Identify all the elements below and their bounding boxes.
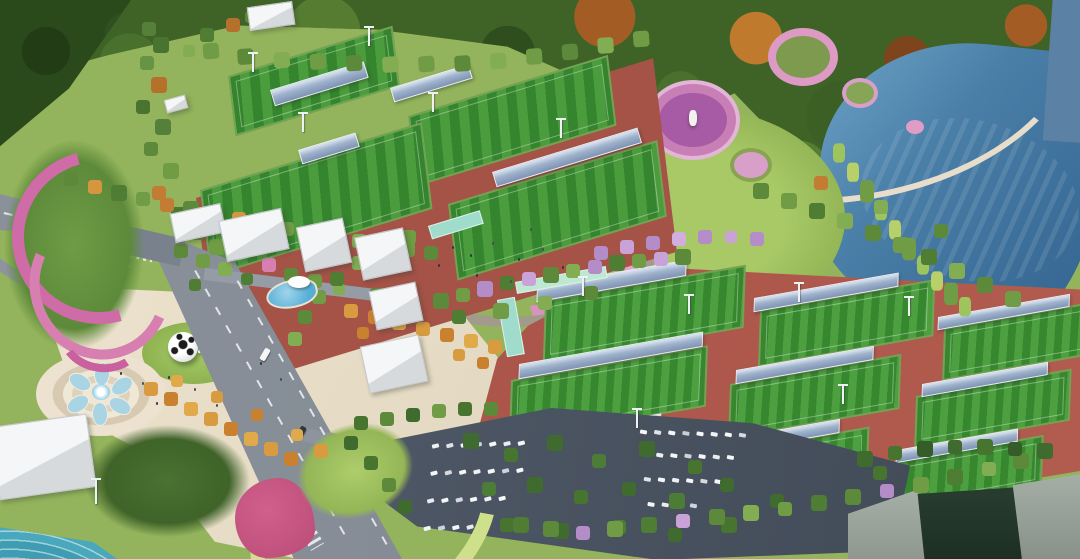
flower-circle-garden: [768, 28, 838, 86]
floodlight-pole: [582, 276, 584, 296]
floodlight-pole: [302, 112, 304, 132]
flower-circle-garden: [906, 120, 924, 134]
white-sculpture: [689, 110, 697, 126]
floodlight-pole: [95, 478, 97, 504]
garden-grove: [85, 425, 250, 537]
fountain-jet: [92, 384, 110, 400]
tree-cluster: [350, 310, 352, 312]
tree-cluster: [210, 50, 212, 52]
tree-cluster: [408, 236, 410, 238]
aerial-rendering-sports-park: [0, 0, 1080, 559]
tree-cluster: [440, 300, 442, 302]
floodlight-pole: [688, 294, 690, 314]
floodlight-pole: [798, 282, 800, 302]
flower-circle-garden: [842, 78, 878, 108]
tree-cluster: [760, 190, 762, 192]
floodlight-pole: [432, 92, 434, 112]
pavilion: [164, 94, 189, 113]
tree-cluster: [180, 250, 182, 252]
tree-cluster: [600, 252, 602, 254]
tree-cluster: [520, 524, 522, 526]
floodlight-pole: [252, 52, 254, 72]
pond-canopy: [288, 276, 310, 288]
tree-cluster-poplars: [838, 151, 840, 154]
flower-circle-garden: [730, 148, 772, 182]
tree-cluster: [150, 388, 152, 390]
floodlight-pole: [560, 118, 562, 138]
people: [452, 246, 454, 249]
tree-cluster: [864, 458, 866, 460]
floodlight-pole: [636, 408, 638, 428]
people: [120, 372, 122, 375]
dam-spillway: [848, 450, 1080, 559]
tree-cluster: [148, 28, 150, 30]
tree-cluster: [70, 178, 72, 180]
floodlight-pole: [908, 296, 910, 316]
floodlight-pole: [842, 384, 844, 404]
tree-cluster: [360, 422, 362, 424]
floodlight-pole: [368, 26, 370, 46]
service-building: [296, 218, 353, 273]
service-building: [0, 414, 97, 501]
